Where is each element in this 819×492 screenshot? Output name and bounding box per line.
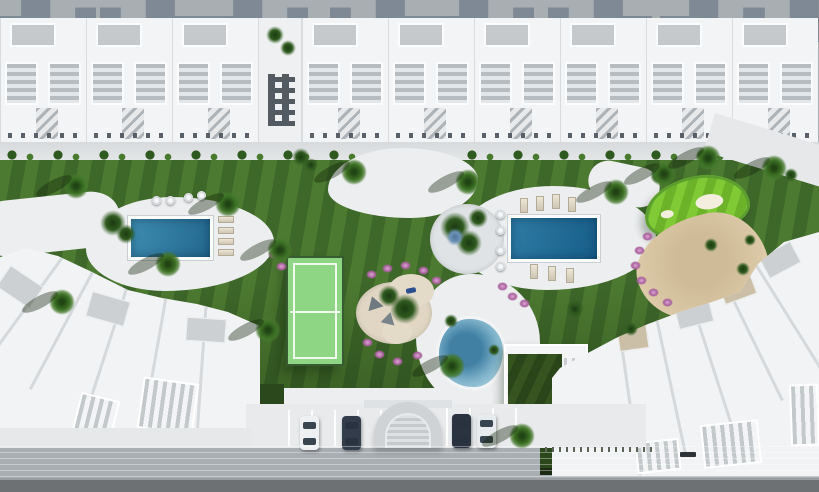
roof-deck-panel <box>182 23 228 47</box>
round-pouf <box>496 262 505 271</box>
rear-window <box>303 438 316 445</box>
bush <box>736 262 750 276</box>
thatch-umbrella <box>96 330 124 358</box>
flower-cluster <box>648 288 659 297</box>
pergola-grid <box>307 62 340 105</box>
townhouse-unit <box>0 18 86 142</box>
palm-tree <box>336 154 372 190</box>
bush <box>704 238 718 252</box>
roof-grid-panel <box>137 376 200 435</box>
pergola-grid <box>737 62 770 105</box>
bush <box>744 234 756 246</box>
townhouse-unit <box>172 18 258 142</box>
pergola-grid <box>350 62 383 105</box>
palm-tree <box>44 284 80 320</box>
aerial-render <box>0 0 819 492</box>
pergola-grid <box>479 62 512 105</box>
flower-cluster <box>519 299 530 308</box>
pergola-grid <box>48 62 81 105</box>
roof-deck-panel <box>10 23 56 47</box>
round-pouf <box>184 193 193 202</box>
bush <box>304 158 318 172</box>
sun-lounger <box>218 238 234 245</box>
facade-windows <box>310 133 382 138</box>
facade-windows <box>8 133 80 138</box>
rear-window <box>345 438 358 445</box>
townhouse-unit <box>474 18 560 142</box>
flower-cluster <box>497 282 508 291</box>
flower-cluster <box>418 266 429 275</box>
roof-deck-panel <box>742 23 788 47</box>
pergola-grid <box>393 62 426 105</box>
flower-cluster <box>392 357 403 366</box>
pergola-grid <box>436 62 469 105</box>
flower-cluster <box>630 261 641 270</box>
pergola-grid <box>91 62 124 105</box>
flower-cluster <box>412 351 423 360</box>
roof-deck-panel <box>312 23 358 47</box>
palm-tree <box>504 418 540 454</box>
palm-tree <box>250 312 286 348</box>
pergola-grid <box>780 62 813 105</box>
rear-window <box>455 436 468 443</box>
windshield <box>480 420 493 427</box>
facade-windows <box>180 133 252 138</box>
palm-tree <box>690 140 726 176</box>
west-boundary-wall <box>0 428 252 448</box>
palm-tree <box>210 186 246 222</box>
entrance-arch <box>364 400 452 448</box>
palm-tree <box>450 164 486 200</box>
sun-lounger <box>536 196 544 211</box>
townhouse-unit <box>302 18 388 142</box>
townhouse-unit <box>86 18 172 142</box>
roof-deck-panel <box>656 23 702 47</box>
bush <box>266 26 284 44</box>
facade-windows <box>94 133 166 138</box>
flower-cluster <box>507 292 518 301</box>
bush <box>468 208 488 228</box>
palm-tree <box>58 168 94 204</box>
roof-deck-panel <box>96 23 142 47</box>
bush <box>444 314 458 328</box>
roof-grid-panel <box>789 384 819 447</box>
sand-bunker <box>694 192 724 211</box>
round-pouf <box>152 196 161 205</box>
roof-panel <box>185 317 227 344</box>
road <box>0 478 819 492</box>
townhouse-unit <box>560 18 646 142</box>
lap-pool-east <box>508 215 600 262</box>
parked-car <box>342 416 361 450</box>
sun-lounger <box>530 264 538 279</box>
facade-windows <box>396 133 468 138</box>
flower-cluster <box>636 276 647 285</box>
pergola-grid <box>5 62 38 105</box>
sun-lounger <box>520 198 528 213</box>
bush <box>566 300 584 318</box>
pergola-grid <box>134 62 167 105</box>
windshield <box>303 422 316 429</box>
sand-bunker <box>660 209 674 219</box>
round-pouf <box>496 226 505 235</box>
sun-lounger <box>218 249 234 256</box>
flower-cluster <box>431 276 442 285</box>
round-pouf <box>496 210 505 219</box>
palm-tree <box>756 150 792 186</box>
sidewalk-pickets <box>545 447 657 452</box>
townhouse-unit <box>388 18 474 142</box>
flower-cluster <box>362 338 373 347</box>
flower-cluster <box>642 232 653 241</box>
parked-car <box>452 414 471 448</box>
bush <box>446 228 464 246</box>
parked-car <box>300 416 319 450</box>
flower-cluster <box>662 298 673 307</box>
pergola-grid <box>565 62 598 105</box>
pergola-grid <box>522 62 555 105</box>
palm-tree <box>150 246 186 282</box>
flower-cluster <box>400 261 411 270</box>
pergola-grid <box>694 62 727 105</box>
bush <box>624 322 638 336</box>
bush <box>280 40 296 56</box>
flower-cluster <box>366 270 377 279</box>
roof-deck-panel <box>398 23 444 47</box>
pergola-grid <box>220 62 253 105</box>
sun-lounger <box>548 266 556 281</box>
tower-window-grid <box>268 74 295 126</box>
palm-tree <box>262 232 298 268</box>
windshield <box>345 422 358 429</box>
roof-deck-panel <box>570 23 616 47</box>
padel-net-line <box>290 311 340 313</box>
bush <box>378 285 400 307</box>
sun-lounger <box>566 268 574 283</box>
windshield <box>455 420 468 427</box>
bush <box>116 224 136 244</box>
padel-court <box>286 256 344 366</box>
bush <box>488 344 500 356</box>
street-grate <box>680 452 696 457</box>
flower-cluster <box>374 350 385 359</box>
flower-cluster <box>634 246 645 255</box>
facade-windows <box>568 133 640 138</box>
sun-lounger <box>218 227 234 234</box>
pergola-grid <box>651 62 684 105</box>
sun-lounger <box>552 194 560 209</box>
facade-windows <box>482 133 554 138</box>
round-pouf <box>496 246 505 255</box>
pergola-grid <box>177 62 210 105</box>
sidewalk <box>0 446 819 478</box>
pergola-grid <box>608 62 641 105</box>
flower-cluster <box>382 264 393 273</box>
palm-tree <box>434 348 470 384</box>
round-pouf <box>166 196 175 205</box>
roof-deck-panel <box>484 23 530 47</box>
